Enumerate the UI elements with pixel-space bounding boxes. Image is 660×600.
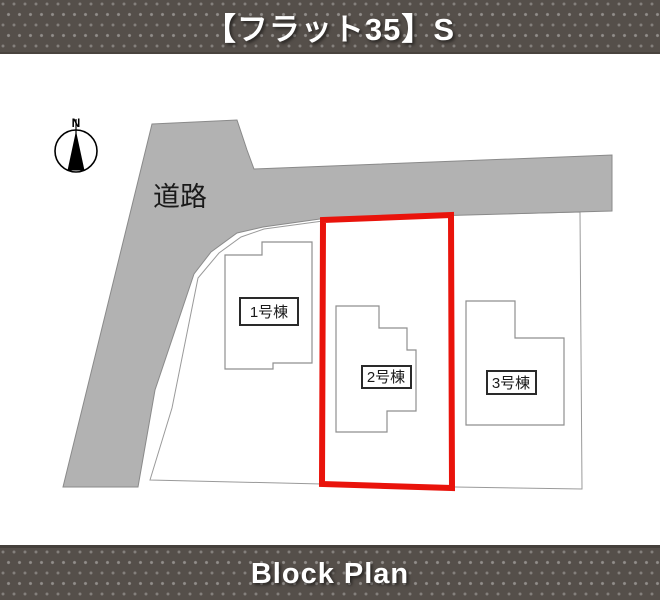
page-title: 【フラット35】S [205,4,455,49]
footer-banner: Block Plan [0,545,660,600]
header-banner: 【フラット35】S [0,0,660,54]
lot-1-label-box: 1号棟 [240,298,298,325]
site-plan-drawing: 道路 N 1号棟 2号棟 3号棟 [0,0,660,600]
block-plan-page: 道路 N 1号棟 2号棟 3号棟 【フラット35】S B [0,0,660,600]
lot-2-label-box: 2号棟 [362,366,411,388]
lot-1-label: 1号棟 [250,304,288,321]
lot-3-label-box: 3号棟 [487,371,536,394]
lot-2-label: 2号棟 [367,369,405,386]
road-label: 道路 [153,182,207,212]
compass-needle-icon [68,131,85,171]
lot-3-label: 3号棟 [492,375,530,392]
compass: N [55,116,97,172]
footer-title: Block Plan [251,558,409,591]
